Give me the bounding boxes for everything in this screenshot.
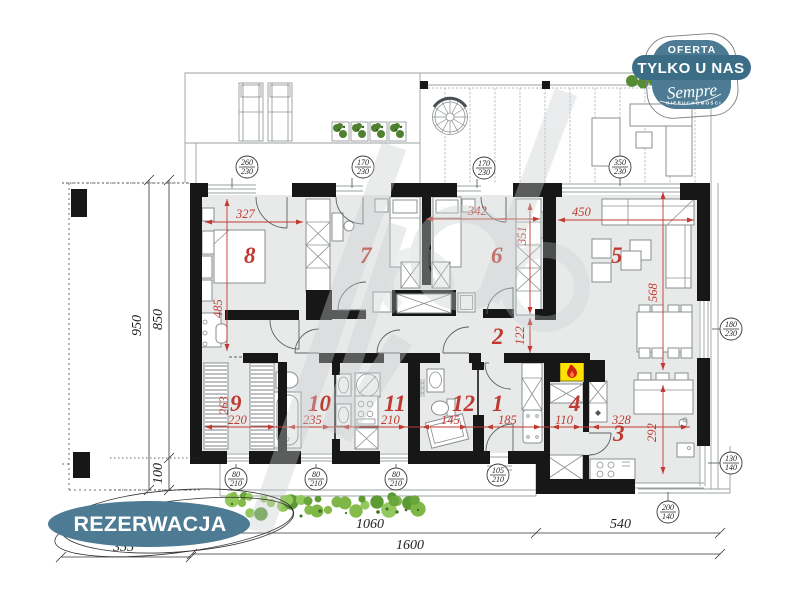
svg-text:210: 210 xyxy=(310,479,322,488)
svg-text:210: 210 xyxy=(390,479,402,488)
svg-text:2: 2 xyxy=(491,324,504,349)
svg-text:230: 230 xyxy=(241,167,253,176)
svg-text:450: 450 xyxy=(572,205,592,219)
svg-text:210: 210 xyxy=(492,475,504,484)
svg-text:850: 850 xyxy=(151,309,166,330)
svg-text:540: 540 xyxy=(610,517,631,532)
svg-text:OFERTA: OFERTA xyxy=(668,44,716,56)
svg-text:230: 230 xyxy=(357,167,369,176)
svg-text:200: 200 xyxy=(662,503,674,512)
svg-text:260: 260 xyxy=(241,158,253,167)
svg-text:230: 230 xyxy=(725,329,737,338)
svg-text:1060: 1060 xyxy=(356,517,384,532)
svg-text:230: 230 xyxy=(478,168,490,177)
svg-text:5: 5 xyxy=(611,243,623,268)
svg-text:140: 140 xyxy=(662,512,674,521)
svg-text:1: 1 xyxy=(492,391,504,416)
svg-text:100: 100 xyxy=(151,463,166,484)
svg-text:230: 230 xyxy=(614,167,626,176)
svg-text:950: 950 xyxy=(130,315,145,336)
svg-text:8: 8 xyxy=(244,243,256,268)
svg-text:12: 12 xyxy=(452,391,475,416)
svg-text:80: 80 xyxy=(392,470,400,479)
svg-text:9: 9 xyxy=(230,391,242,416)
svg-text:263: 263 xyxy=(217,396,231,415)
svg-text:350: 350 xyxy=(613,158,626,167)
svg-text:130: 130 xyxy=(725,454,737,463)
svg-text:292: 292 xyxy=(645,423,659,442)
svg-text:11: 11 xyxy=(384,391,406,416)
svg-text:TYLKO U NAS: TYLKO U NAS xyxy=(637,60,744,77)
svg-text:327: 327 xyxy=(235,207,256,221)
svg-text:80: 80 xyxy=(232,470,240,479)
svg-text:3: 3 xyxy=(612,421,625,446)
svg-text:1600: 1600 xyxy=(396,538,424,553)
svg-text:105: 105 xyxy=(492,466,504,475)
svg-text:568: 568 xyxy=(646,283,660,303)
svg-text:NIERUCHOMOŚCI: NIERUCHOMOŚCI xyxy=(666,100,722,106)
svg-text:122: 122 xyxy=(513,326,527,345)
svg-text:80: 80 xyxy=(312,470,320,479)
svg-text:180: 180 xyxy=(725,320,737,329)
svg-text:REZERWACJA: REZERWACJA xyxy=(73,512,226,536)
svg-text:140: 140 xyxy=(725,463,737,472)
svg-text:485: 485 xyxy=(211,299,225,318)
svg-text:170: 170 xyxy=(478,159,490,168)
svg-text:210: 210 xyxy=(230,479,242,488)
svg-text:4: 4 xyxy=(568,391,581,416)
svg-text:170: 170 xyxy=(357,158,369,167)
